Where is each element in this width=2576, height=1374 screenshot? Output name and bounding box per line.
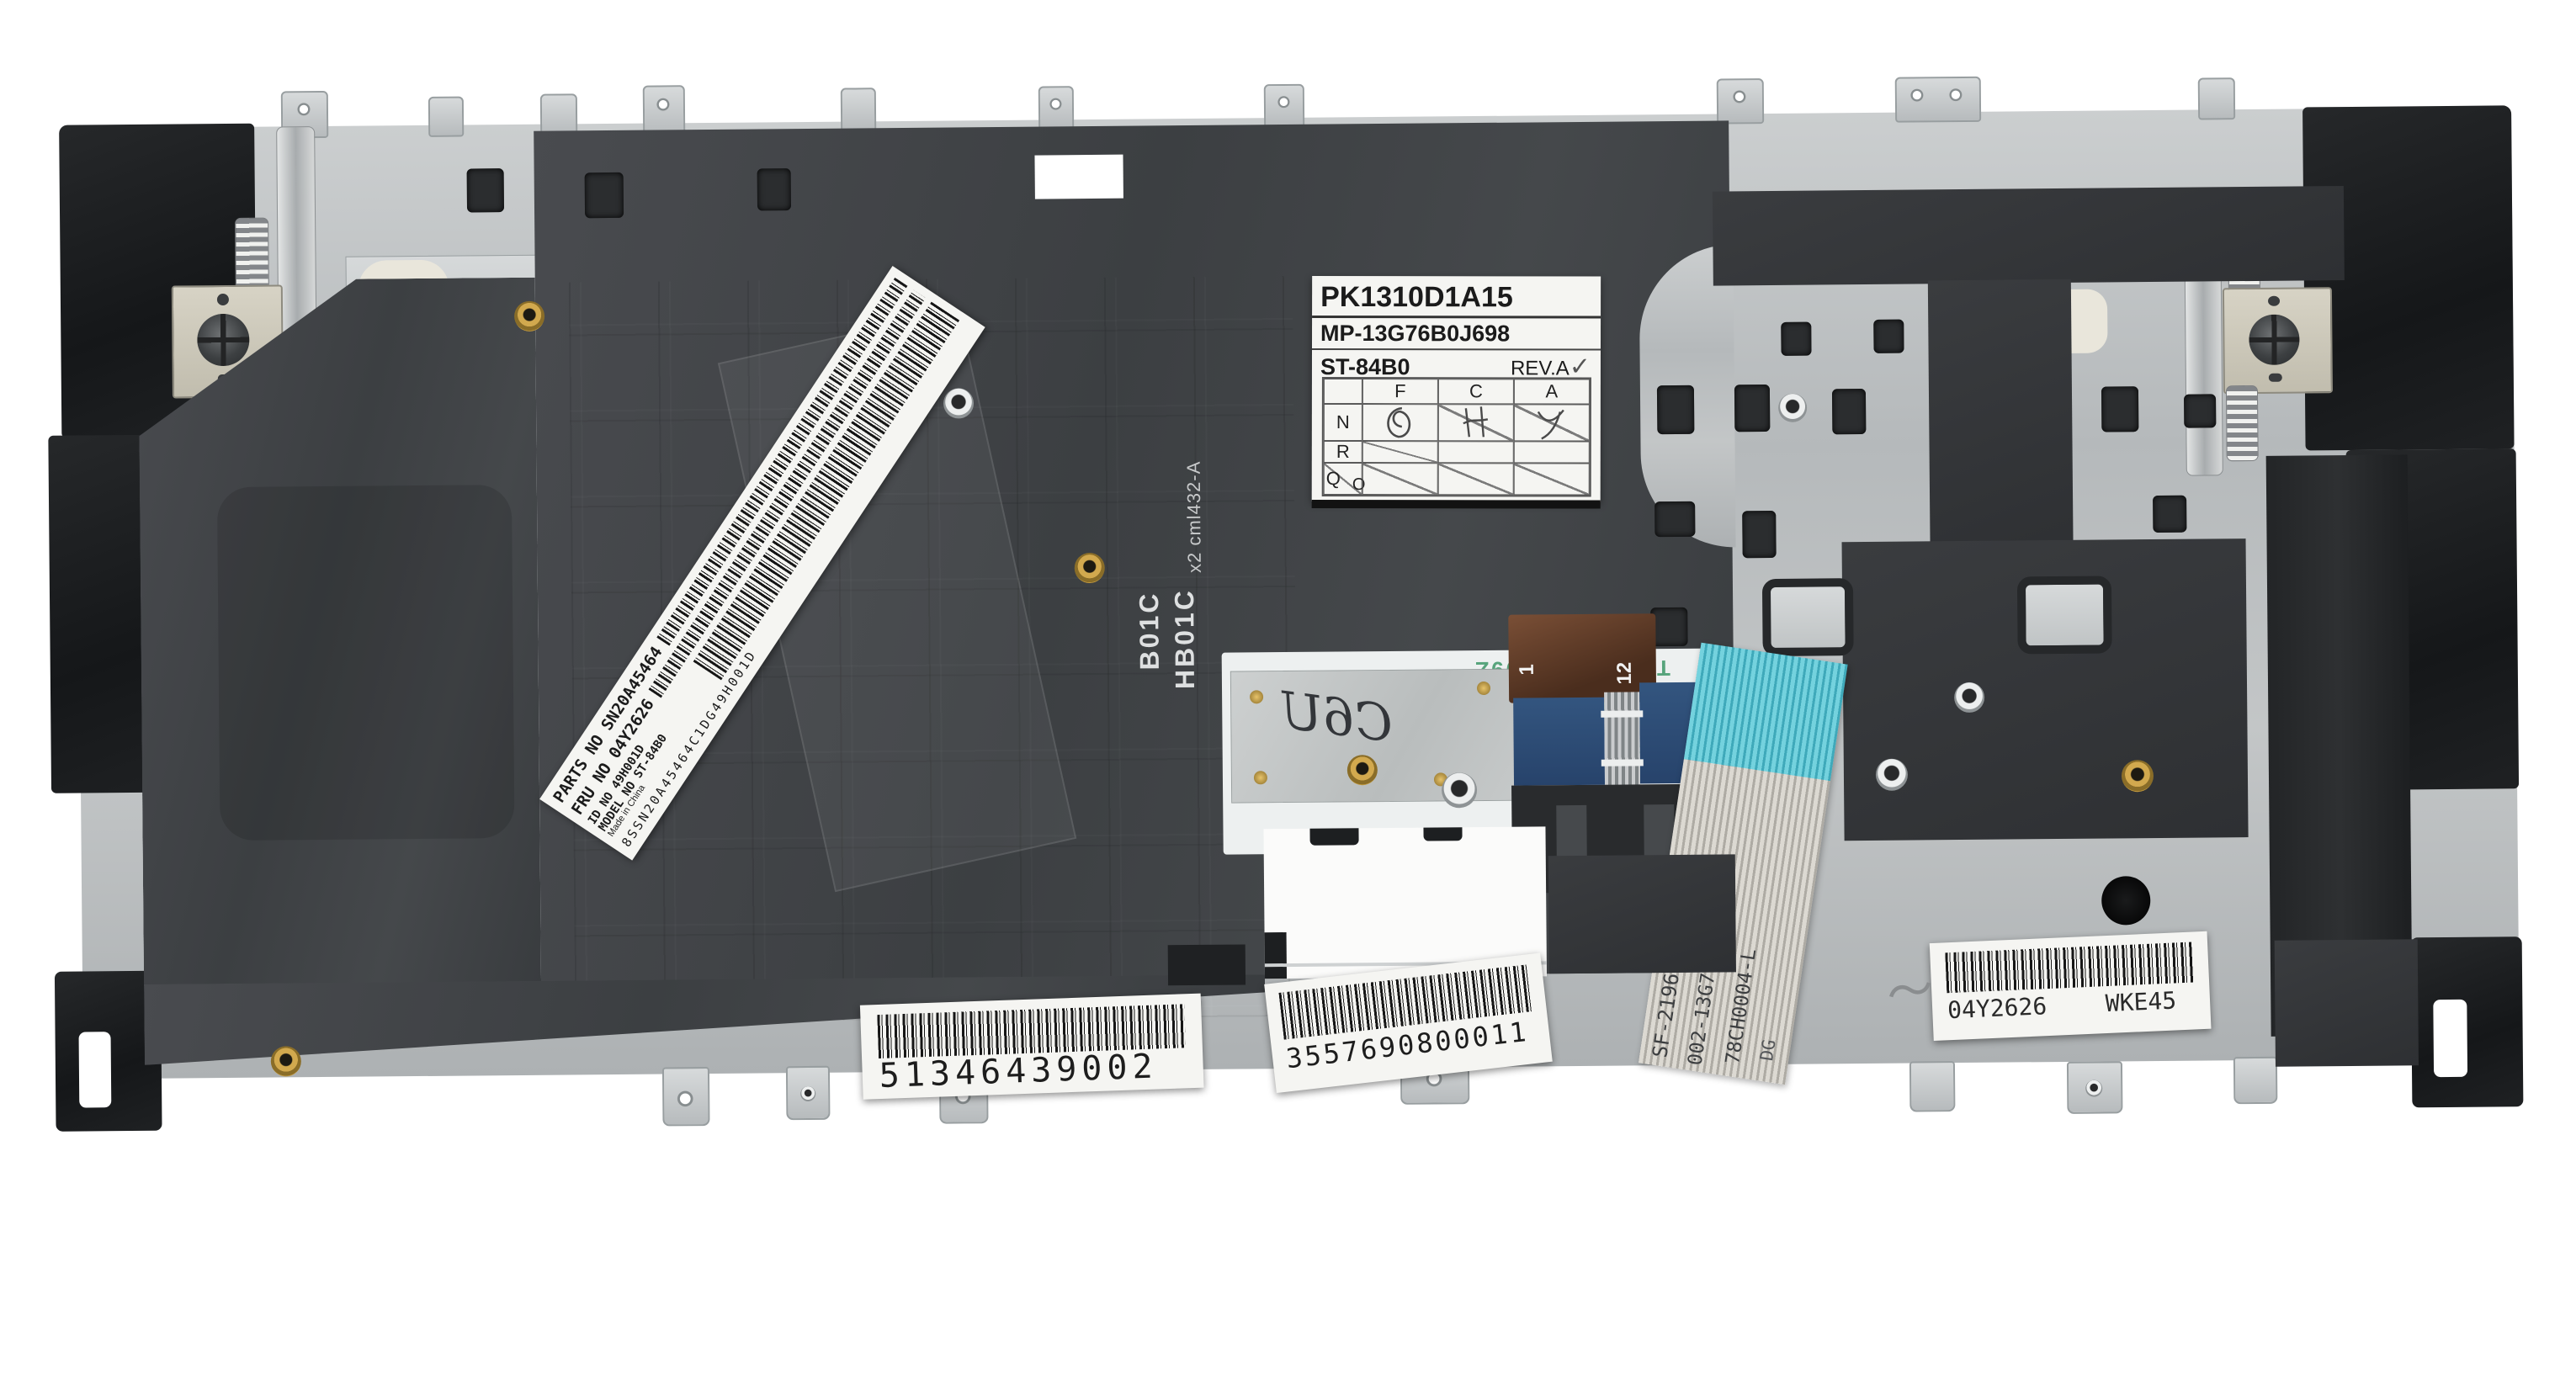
black-tab — [1168, 944, 1246, 985]
pin-12-label: 12 — [1612, 625, 1637, 684]
silver-rivet — [1876, 759, 1908, 791]
cutout — [2184, 394, 2216, 427]
mylar-patch-pocket-right — [1548, 854, 1736, 973]
black-dot-sticker — [2101, 876, 2151, 926]
cutout — [1734, 385, 1770, 432]
mount-tab-bottom — [2233, 1057, 2277, 1104]
row-r: R — [1324, 441, 1362, 463]
kapton-connector: 1 12 — [1508, 613, 1656, 703]
gold-screw — [1477, 682, 1490, 695]
brass-eyelet — [2122, 760, 2154, 792]
hinge-screw — [2249, 314, 2300, 365]
mount-tab — [428, 97, 464, 137]
silver-rivet — [1954, 682, 1984, 713]
hinge-screw — [197, 314, 250, 367]
barcode — [1945, 942, 2194, 994]
handwritten-mark — [1528, 405, 1575, 440]
mount-tab — [1895, 77, 1981, 123]
white-gap — [1034, 155, 1123, 199]
film-text-b01c: B01C — [1133, 523, 1166, 670]
film-text-x2: x2 cml432-A — [1182, 396, 1206, 573]
mylar-patch-bottom-right — [2275, 939, 2419, 1066]
silver-rivet — [1442, 772, 1477, 808]
spec-label: PK1310D1A15 MP-13G76B0J698 ST-84B0 REV.A… — [1312, 276, 1601, 502]
mount-tab — [643, 85, 686, 135]
handwritten-mark — [1453, 405, 1500, 440]
cutout — [2101, 386, 2138, 432]
cutout — [757, 168, 791, 210]
ffc-text-dg: DG — [1756, 959, 1791, 1062]
hinge-spring — [235, 218, 269, 294]
mount-tab-bottom — [1909, 1061, 1956, 1111]
spec-label-mp: MP-13G76B0J698 — [1312, 318, 1601, 351]
cutout — [1650, 607, 1687, 646]
barcode-label-right: 04Y2626 WKE45 — [1930, 931, 2212, 1041]
mount-tab-bottom — [2067, 1061, 2123, 1114]
brass-eyelet — [1075, 553, 1105, 583]
col-c: C — [1438, 379, 1514, 404]
silver-rivet — [1778, 394, 1807, 422]
cutout — [1654, 501, 1695, 537]
mount-tab — [2198, 77, 2235, 119]
hook-window — [2017, 576, 2112, 654]
row-n: N — [1324, 404, 1362, 441]
brass-eyelet — [1347, 755, 1378, 785]
spec-label-table: F C A N R Q O — [1322, 377, 1591, 497]
cutout — [1873, 320, 1904, 353]
spec-label-model: PK1310D1A15 — [1312, 276, 1601, 319]
barcode-label-left: 51346439002 — [860, 994, 1204, 1100]
cutout — [467, 168, 504, 212]
mylar-strip-right — [1928, 279, 2074, 558]
cutout — [1781, 322, 1811, 356]
cutout — [2153, 496, 2186, 533]
row-q: Q — [1326, 468, 1341, 490]
gold-screw — [1254, 771, 1267, 784]
hinge-spring — [2226, 385, 2259, 461]
silver-rivet — [943, 388, 974, 418]
cutout — [1657, 385, 1695, 434]
gold-screw — [1250, 690, 1263, 703]
mount-tab-bottom — [786, 1066, 831, 1120]
mount-tab — [540, 93, 577, 135]
hook-window — [1762, 578, 1854, 656]
barcode-fru: 04Y2626 — [1947, 992, 2048, 1024]
cutout — [1742, 511, 1776, 558]
mount-tab — [1264, 84, 1304, 128]
film-wrinkle — [217, 485, 515, 841]
right-foot — [2411, 936, 2524, 1107]
mount-tab-bottom — [662, 1067, 710, 1126]
white-pocket — [1263, 826, 1547, 979]
brass-eyelet — [514, 301, 544, 332]
pin-1-label: 1 — [1515, 624, 1539, 675]
mount-tab — [1717, 78, 1764, 124]
handwritten-mark — [1377, 405, 1424, 440]
col-f: F — [1362, 379, 1438, 404]
barcode-code: WKE45 — [2105, 986, 2177, 1017]
cutout — [1832, 389, 1866, 434]
blue-pad — [1513, 698, 1605, 786]
keyboard-assembly-photo: B01C HB01C x2 cml432-A TATSU E30809Z TAT… — [0, 0, 2576, 1374]
mount-tab — [841, 88, 876, 131]
connector-clip — [1604, 692, 1640, 786]
keyboard-assembly: B01C HB01C x2 cml432-A TATSU E30809Z TAT… — [0, 0, 2576, 1374]
mount-tab — [1038, 86, 1074, 130]
mylar-band-top-right — [1713, 186, 2345, 286]
col-a: A — [1514, 379, 1590, 404]
brass-eyelet — [271, 1046, 301, 1076]
cutout — [585, 172, 624, 218]
hinge-plate-right — [2223, 287, 2333, 394]
